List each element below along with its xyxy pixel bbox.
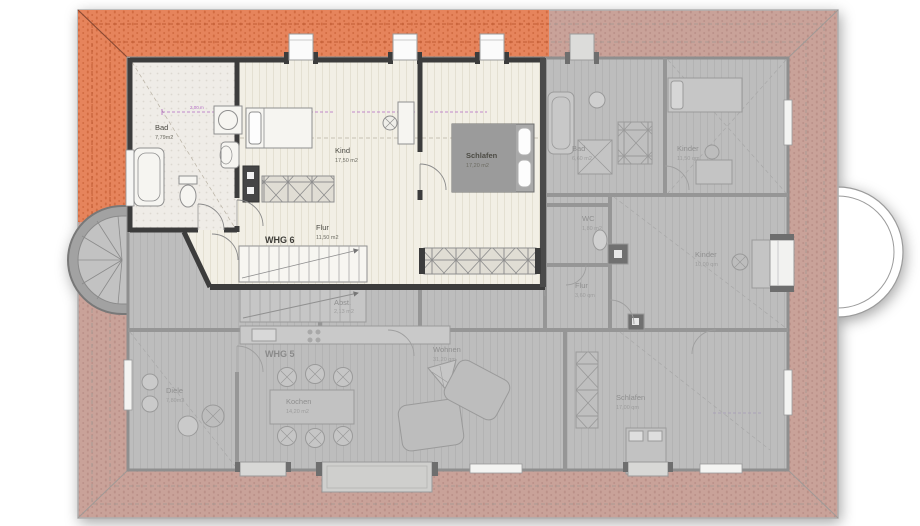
area-kochen: 14,20 m2 — [286, 409, 309, 415]
area-kinder1: 11,50 qm — [677, 156, 700, 162]
label-flur6: Flur — [316, 223, 329, 232]
label-kochen: Kochen — [286, 397, 311, 406]
label-bad6: Bad — [155, 123, 168, 132]
area-wc: 1,80 m2 — [582, 226, 602, 232]
toilet-gray — [593, 230, 607, 250]
label-wc: WC — [582, 214, 595, 223]
bay-bottom — [316, 462, 438, 492]
right-semicircle-bay — [838, 187, 903, 317]
dining-table — [270, 390, 354, 424]
label-wohnen: Wohnen — [433, 345, 461, 354]
dormer-bottom-2 — [623, 462, 673, 476]
dormer-top-2 — [393, 34, 417, 60]
dresser-dark — [243, 166, 259, 202]
diele-table — [178, 416, 198, 436]
area-abst: 2,13 m2 — [334, 309, 354, 315]
chair-kinder1 — [705, 145, 719, 159]
pillow-1 — [518, 128, 531, 155]
plant-1 — [142, 374, 158, 390]
bathtub — [134, 148, 164, 206]
dormer-top-1 — [289, 34, 313, 60]
label-kinder2: Kinder — [695, 250, 717, 259]
washbasin — [221, 142, 239, 168]
area-bad6: 7,79m2 — [155, 135, 173, 141]
roof-window-right — [770, 234, 794, 292]
label-bad-right: Bad — [572, 144, 585, 153]
dormer-bottom-1 — [235, 462, 291, 476]
toilet — [180, 185, 196, 207]
label-abst: Abst. — [334, 298, 351, 307]
kitchen-sink — [252, 329, 276, 341]
dormer-top-3 — [480, 34, 504, 60]
label-kind6: Kind — [335, 146, 350, 155]
wardrobe-schlafen — [424, 248, 536, 274]
desk-kind — [398, 102, 414, 144]
area-schlafen6: 17,20 m2 — [466, 163, 489, 169]
area-diele: 7,80m2 — [166, 398, 184, 404]
toilet-tank — [179, 176, 197, 184]
area-bad-right: 6,60 m2 — [572, 156, 592, 162]
area-flur-right: 3,60 qm — [575, 293, 595, 299]
whg6-stairs — [239, 246, 367, 282]
sink-gray — [589, 92, 605, 108]
label-flur-right: Flur — [575, 281, 588, 290]
sofa-part1 — [397, 398, 465, 452]
floor-plan-canvas: 2,00 m — [0, 0, 920, 526]
label-whg5: WHG 5 — [265, 349, 295, 359]
area-wohnen: 31,20 qm — [433, 357, 456, 363]
area-flur6: 11,50 m2 — [316, 235, 339, 241]
label-schlafen6: Schlafen — [466, 151, 498, 160]
desk-kinder1 — [696, 160, 732, 184]
building-plan: 2,00 m — [68, 10, 903, 518]
floor-plan-screenshot: 2,00 m — [0, 0, 920, 526]
label-kinder1: Kinder — [677, 144, 699, 153]
wardrobe-schlafen5 — [576, 352, 598, 428]
label-schlafen5: Schlafen — [616, 393, 645, 402]
plant-2 — [142, 396, 158, 412]
label-diele: Diele — [166, 386, 183, 395]
area-kind6: 17,50 m2 — [335, 158, 358, 164]
wardrobe-kind — [262, 176, 334, 202]
dormer-top-gray — [565, 34, 599, 64]
label-whg6: WHG 6 — [265, 235, 295, 245]
wardrobe-kinder1 — [618, 122, 652, 164]
area-kinder2: 10,00 qm — [695, 262, 718, 268]
bad-window — [126, 150, 134, 206]
headroom-dim-label: 2,00 m — [190, 105, 204, 110]
pillow-2 — [518, 160, 531, 187]
area-schlafen5: 17,00 qm — [616, 405, 639, 411]
